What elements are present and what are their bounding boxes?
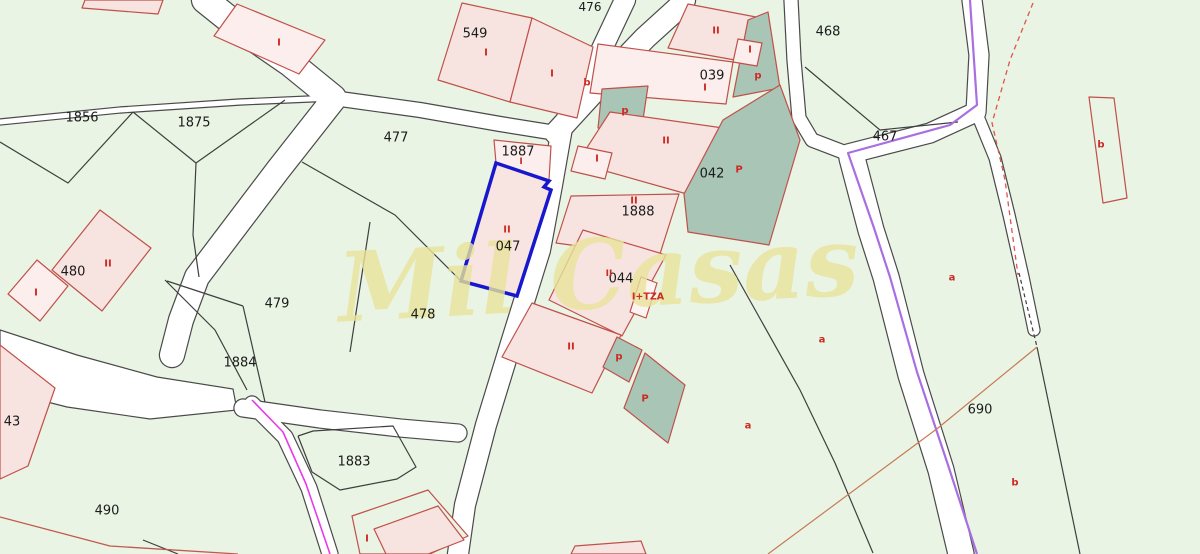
parcel-label-1888: 1888 bbox=[621, 205, 654, 220]
building-code-label: I bbox=[365, 534, 369, 545]
parcel-label-549: 549 bbox=[463, 27, 488, 42]
parcel-label-1884: 1884 bbox=[223, 356, 256, 371]
building-code-label: I+TZA bbox=[632, 292, 665, 303]
building-code-label: a bbox=[949, 273, 956, 284]
building-code-label: p bbox=[615, 352, 622, 363]
building-code-label: II bbox=[503, 225, 510, 236]
building-code-label: II bbox=[712, 26, 719, 37]
cadastral-map-page: Mil Casas1856187554947647718870394684670… bbox=[0, 0, 1200, 554]
building-code-label: a bbox=[819, 335, 826, 346]
building-code-label: I bbox=[703, 83, 707, 94]
building-code-label: b bbox=[1097, 140, 1104, 151]
parcel-label-478: 478 bbox=[411, 308, 436, 323]
building-code-label: p bbox=[754, 71, 761, 82]
parcel-label-479: 479 bbox=[265, 297, 290, 312]
parcel-label-1856: 1856 bbox=[65, 111, 98, 126]
building-code-label: II bbox=[606, 269, 613, 279]
parcel-label-43: 43 bbox=[4, 415, 21, 430]
building-code-label: I bbox=[595, 154, 599, 165]
parcel-label-468: 468 bbox=[816, 25, 841, 40]
building-code-label: I bbox=[550, 69, 554, 80]
building-code-label: I bbox=[34, 288, 38, 299]
building-code-label: b bbox=[1011, 478, 1018, 489]
parcel-label-1887: 1887 bbox=[501, 145, 534, 160]
parcel-label-690: 690 bbox=[968, 403, 993, 418]
parcel-label-480: 480 bbox=[61, 265, 86, 280]
building-code-label: I bbox=[519, 157, 522, 167]
building-code-label: II bbox=[630, 196, 637, 207]
building-code-label: P bbox=[641, 394, 648, 405]
parcel-label-039: 039 bbox=[700, 69, 725, 84]
building-code-label: II bbox=[104, 259, 111, 270]
building-code-label: I bbox=[484, 48, 488, 59]
parcel-label-1875: 1875 bbox=[177, 116, 210, 131]
building-code-label: II bbox=[567, 342, 574, 353]
cadastral-map[interactable]: Mil Casas1856187554947647718870394684670… bbox=[0, 0, 1200, 554]
building-code-label: I bbox=[277, 38, 281, 49]
parcel-label-490: 490 bbox=[95, 504, 120, 519]
parcel-label-042: 042 bbox=[700, 167, 725, 182]
parcel-label-477: 477 bbox=[384, 131, 409, 146]
building-code-label: b bbox=[583, 78, 590, 89]
parcel-label-476: 476 bbox=[579, 0, 602, 14]
building-code-label: a bbox=[745, 421, 752, 432]
building-code-label: p bbox=[621, 106, 628, 117]
parcel-label-047: 047 bbox=[496, 240, 521, 255]
building-code-label: II bbox=[662, 136, 669, 147]
building-code-label: P bbox=[735, 165, 742, 176]
building-code-label: I bbox=[748, 45, 752, 56]
parcel-label-1883: 1883 bbox=[337, 455, 370, 470]
parcel-label-467: 467 bbox=[873, 130, 898, 145]
